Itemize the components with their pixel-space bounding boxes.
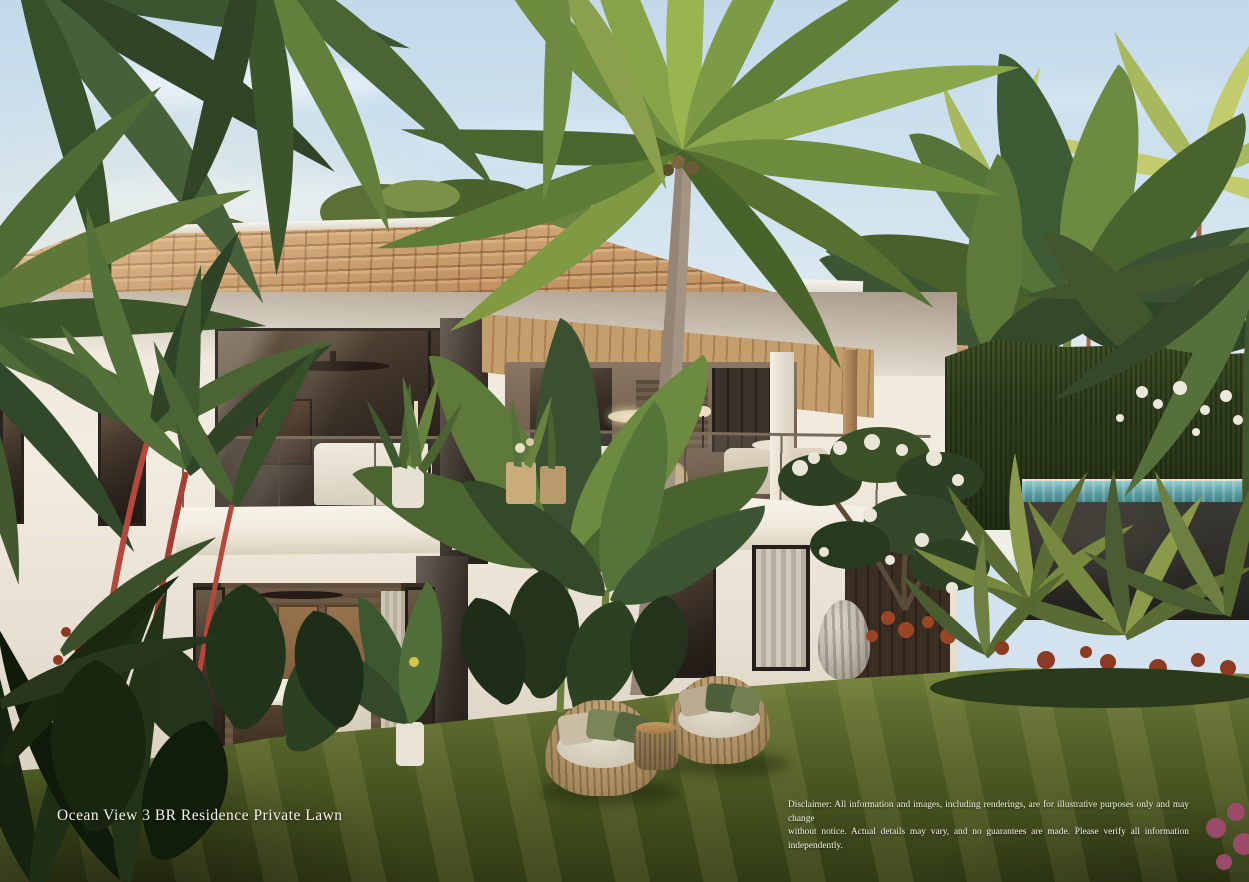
- villa-rendering-scene: Ocean View 3 BR Residence Private Lawn D…: [0, 0, 1249, 882]
- magenta-flowers: [1206, 803, 1249, 870]
- coconut-palm: [367, 0, 1027, 695]
- image-caption: Ocean View 3 BR Residence Private Lawn: [57, 807, 343, 825]
- disclaimer-text: Disclaimer: All information and images, …: [788, 799, 1189, 853]
- rattan-lounge-chair-right: [668, 676, 770, 764]
- table-top: [636, 722, 676, 734]
- frangipani-shrub: [778, 427, 990, 644]
- disclaimer-line-1: Disclaimer: All information and images, …: [788, 799, 1189, 826]
- rattan-side-table: [634, 726, 678, 770]
- disclaimer-line-2: without notice. Actual details may vary,…: [788, 826, 1189, 853]
- right-corner-fronds: [1019, 241, 1249, 522]
